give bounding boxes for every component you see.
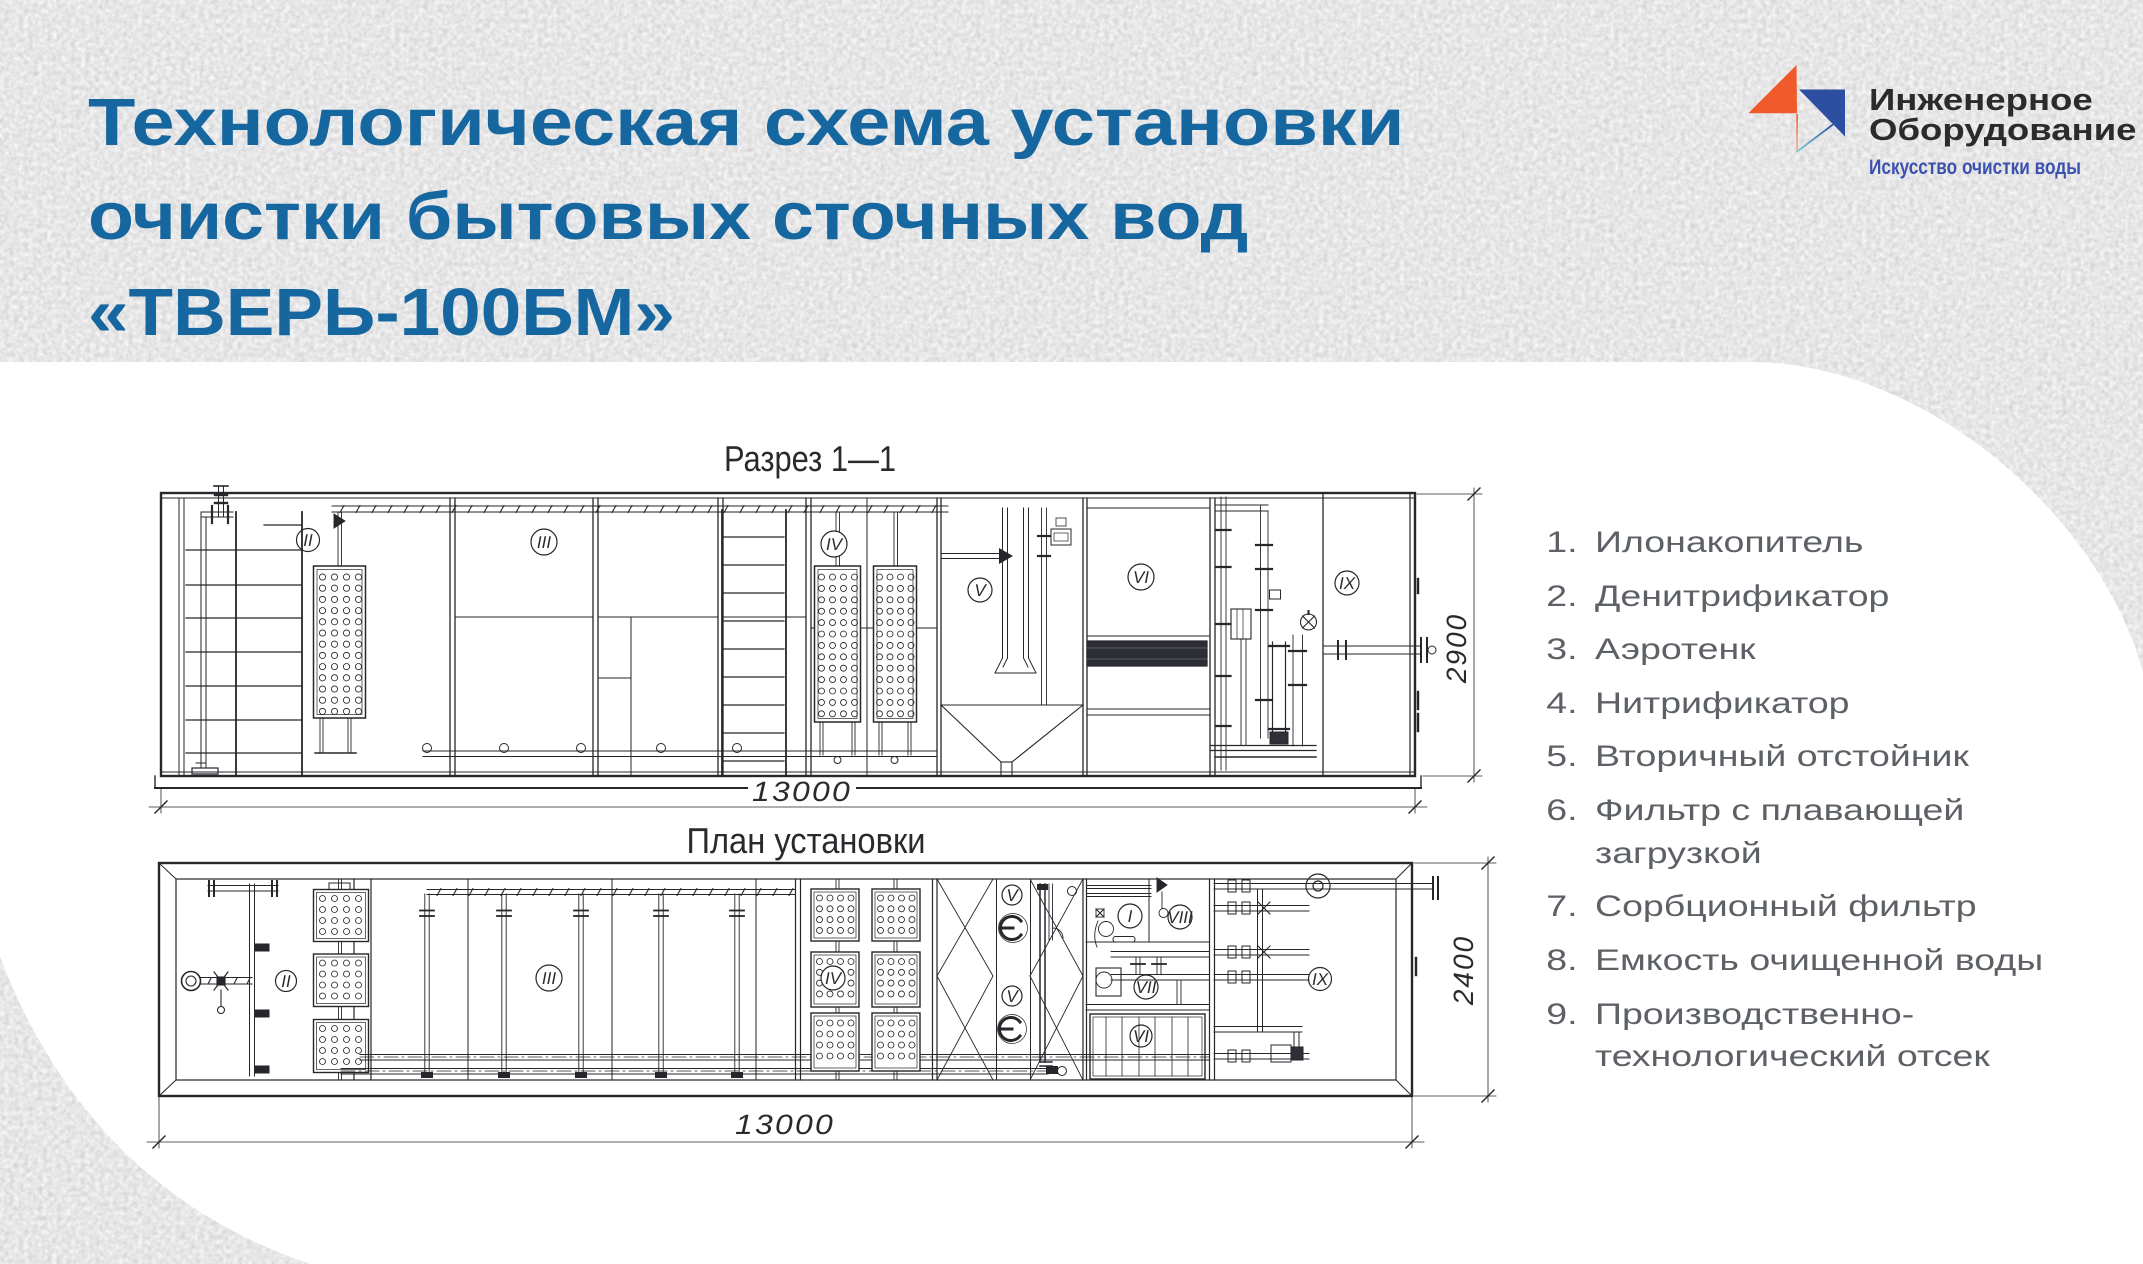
svg-text:13000: 13000 [752, 776, 852, 807]
svg-text:V: V [974, 581, 987, 600]
svg-text:II: II [303, 531, 313, 550]
svg-text:VII: VII [1136, 978, 1157, 997]
svg-text:III: III [542, 969, 556, 988]
svg-text:IV: IV [825, 969, 843, 988]
svg-text:13000: 13000 [735, 1109, 835, 1140]
svg-text:VIII: VIII [1167, 908, 1193, 927]
svg-text:III: III [537, 533, 551, 552]
svg-text:II: II [281, 972, 291, 991]
svg-text:IX: IX [1339, 574, 1356, 593]
svg-text:2900: 2900 [1441, 613, 1472, 684]
svg-text:Разрез 1—1: Разрез 1—1 [724, 438, 896, 479]
svg-text:I: I [1128, 907, 1133, 926]
svg-text:План установки: План установки [687, 820, 926, 861]
svg-text:VI: VI [1133, 568, 1149, 587]
svg-text:IV: IV [826, 535, 844, 554]
svg-text:IX: IX [1312, 970, 1329, 989]
svg-text:2400: 2400 [1448, 935, 1479, 1006]
svg-text:V: V [1006, 886, 1019, 905]
svg-text:V: V [1006, 987, 1019, 1006]
svg-text:VI: VI [1133, 1027, 1149, 1046]
